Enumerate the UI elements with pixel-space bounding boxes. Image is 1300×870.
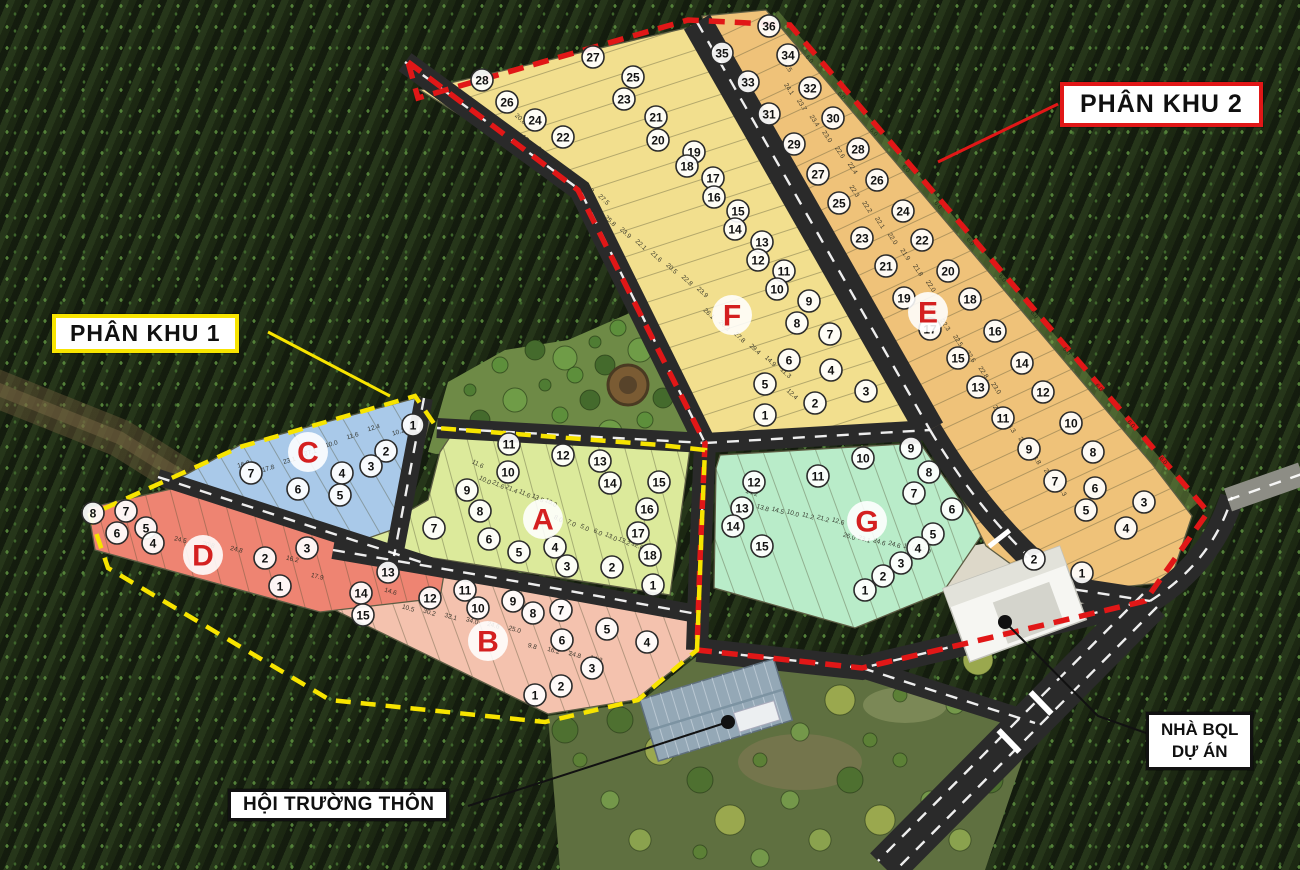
plot-number: 13 — [971, 381, 985, 395]
plot-number: 1 — [532, 689, 539, 703]
tree — [687, 767, 713, 793]
plot-number: 8 — [926, 466, 933, 480]
plot-number: 8 — [530, 607, 537, 621]
plot-number: 16 — [707, 191, 721, 205]
tree — [949, 829, 971, 851]
tree — [589, 336, 601, 348]
plot-number: 15 — [951, 352, 965, 366]
plot-number: 9 — [806, 295, 813, 309]
plot-number: 13 — [755, 236, 769, 250]
site-plan-canvas: 11.610.021.621.411.613.510.08.07.05.06.0… — [0, 0, 1300, 870]
plot-number: 3 — [564, 560, 571, 574]
zone-letter-E: E — [918, 297, 938, 330]
plot-number: 4 — [1123, 522, 1130, 536]
plot-number: 16 — [988, 325, 1002, 339]
plot-number: 32 — [803, 82, 817, 96]
tree — [751, 849, 769, 867]
plot-number: 25 — [626, 71, 640, 85]
plot-number: 23 — [855, 232, 869, 246]
phan-khu-2-label: PHÂN KHU 2 — [1060, 82, 1263, 127]
zone-letter-B: B — [477, 626, 499, 659]
plot-number: 11 — [997, 412, 1010, 426]
plot-number: 2 — [1031, 553, 1038, 567]
plot-number: 30 — [826, 112, 840, 126]
plot-number: 36 — [762, 20, 776, 34]
plot-number: 10 — [856, 452, 870, 466]
plot-number: 2 — [558, 680, 565, 694]
plot-number: 35 — [715, 47, 729, 61]
plot-number: 7 — [827, 328, 834, 342]
plot-number: 12 — [747, 476, 761, 490]
plot-number: 16 — [640, 503, 654, 517]
plot-number: 6 — [295, 483, 302, 497]
plot-number: 4 — [339, 467, 346, 481]
plot-number: 3 — [863, 385, 870, 399]
plot-number: 5 — [337, 489, 344, 503]
tree — [464, 384, 476, 396]
phan-khu-1-leader — [268, 332, 390, 396]
nha-bql-line1: NHÀ BQL — [1161, 719, 1238, 741]
plot-number: 7 — [1052, 475, 1059, 489]
plot-number: 28 — [475, 74, 489, 88]
plot-number: 31 — [762, 108, 776, 122]
plot-number: 2 — [812, 397, 819, 411]
tree — [610, 320, 626, 336]
tree — [573, 753, 587, 767]
plot-number: 11 — [812, 470, 825, 484]
plot-number: 14 — [603, 477, 617, 491]
plot-number: 2 — [383, 445, 390, 459]
plot-number: 2 — [609, 561, 616, 575]
plot-number: 10 — [1064, 417, 1078, 431]
phan-khu-2-leader — [938, 104, 1058, 162]
plot-number: 17 — [631, 527, 645, 541]
plot-number: 3 — [368, 460, 375, 474]
plot-number: 18 — [643, 549, 657, 563]
plot-number: 20 — [651, 134, 665, 148]
tree — [753, 753, 767, 767]
plot-number: 6 — [1092, 482, 1099, 496]
phan-khu-1-label: PHÂN KHU 1 — [52, 314, 239, 353]
plot-number: 4 — [150, 537, 157, 551]
plot-number: 13 — [381, 566, 395, 580]
plot-number: 1 — [862, 584, 869, 598]
plot-number: 5 — [1083, 504, 1090, 518]
zone-letter-G: G — [855, 506, 878, 539]
plot-number: 1 — [1079, 567, 1086, 581]
plot-number: 20 — [941, 265, 955, 279]
plot-number: 15 — [356, 609, 370, 623]
zone-letter-F: F — [723, 300, 741, 333]
plot-number: 4 — [552, 541, 559, 555]
tree — [693, 845, 707, 859]
plot-number: 10 — [770, 283, 784, 297]
zone-letter-D: D — [192, 540, 214, 573]
plot-number: 22 — [556, 131, 570, 145]
plot-number: 4 — [644, 636, 651, 650]
tree — [539, 379, 551, 391]
plot-number: 8 — [90, 507, 97, 521]
plot-number: 21 — [649, 111, 663, 125]
nha-bql-label: NHÀ BQL DỰ ÁN — [1146, 712, 1253, 770]
plot-number: 2 — [880, 570, 887, 584]
plot-number: 3 — [589, 662, 596, 676]
plot-number: 10 — [501, 466, 515, 480]
tree — [791, 723, 809, 741]
plot-number: 7 — [123, 505, 130, 519]
plot-number: 6 — [486, 533, 493, 547]
tree — [567, 367, 583, 383]
plot-number: 18 — [963, 293, 977, 307]
plot-number: 1 — [650, 579, 657, 593]
plot-number: 13 — [735, 502, 749, 516]
plot-number: 12 — [1036, 386, 1050, 400]
tree — [825, 685, 855, 715]
plot-number: 22 — [915, 234, 929, 248]
plot-number: 4 — [828, 364, 835, 378]
plot-number: 5 — [516, 546, 523, 560]
plot-number: 4 — [915, 542, 922, 556]
plot-number: 1 — [277, 580, 284, 594]
tree — [629, 829, 651, 851]
plot-number: 7 — [431, 522, 438, 536]
tree — [863, 733, 877, 747]
plot-number: 2 — [262, 552, 269, 566]
plot-number: 29 — [787, 138, 801, 152]
plot-number: 23 — [617, 93, 631, 107]
tree — [809, 829, 831, 851]
plot-number: 6 — [786, 354, 793, 368]
plot-number: 11 — [503, 438, 516, 452]
tree — [893, 753, 907, 767]
plot-number: 27 — [586, 51, 600, 65]
plot-number: 3 — [1141, 496, 1148, 510]
plot-number: 9 — [908, 442, 915, 456]
tree — [715, 805, 745, 835]
tree — [637, 412, 653, 428]
tree — [525, 340, 545, 360]
plot-number: 3 — [898, 557, 905, 571]
plot-number: 11 — [459, 584, 472, 598]
plot-number: 1 — [762, 409, 769, 423]
plot-number: 14 — [728, 223, 742, 237]
plot-number: 9 — [464, 484, 471, 498]
tree — [503, 388, 527, 412]
tree — [601, 791, 619, 809]
plot-number: 15 — [755, 540, 769, 554]
plot-number: 34 — [781, 49, 795, 63]
plot-number: 8 — [477, 505, 484, 519]
tree — [552, 407, 568, 423]
tree — [552, 717, 578, 743]
nha-bql-line2: DỰ ÁN — [1161, 741, 1238, 763]
plot-number: 5 — [930, 528, 937, 542]
plot-number: 14 — [354, 587, 368, 601]
plot-number: 17 — [706, 172, 720, 186]
plot-number: 3 — [304, 542, 311, 556]
tree — [781, 791, 799, 809]
plot-number: 12 — [423, 592, 437, 606]
plot-number: 15 — [652, 476, 666, 490]
tree — [553, 346, 577, 370]
tree — [607, 707, 633, 733]
plot-number: 21 — [879, 260, 893, 274]
plot-number: 24 — [528, 114, 542, 128]
plot-number: 9 — [1026, 443, 1033, 457]
plot-number: 27 — [811, 168, 825, 182]
plot-number: 7 — [248, 467, 255, 481]
plot-number: 25 — [832, 197, 846, 211]
hoi-truong-thon-label: HỘI TRƯỜNG THÔN — [228, 789, 449, 821]
plot-number: 12 — [751, 254, 765, 268]
plot-number: 5 — [762, 378, 769, 392]
plot-number: 11 — [778, 265, 791, 279]
plot-number: 13 — [593, 455, 607, 469]
tree — [837, 767, 863, 793]
plot-number: 9 — [510, 595, 517, 609]
plot-number: 6 — [114, 527, 121, 541]
plot-number: 18 — [680, 160, 694, 174]
plot-number: 5 — [604, 623, 611, 637]
master-plan-map: 11.610.021.621.411.613.510.08.07.05.06.0… — [0, 0, 1300, 870]
plot-number: 14 — [726, 520, 740, 534]
plot-number: 10 — [471, 602, 485, 616]
plot-number: 26 — [870, 174, 884, 188]
plot-number: 8 — [794, 317, 801, 331]
plot-number: 14 — [1015, 357, 1029, 371]
tree — [580, 390, 600, 410]
plot-number: 26 — [500, 96, 514, 110]
plot-number: 7 — [911, 487, 918, 501]
tree — [492, 357, 508, 373]
tree — [865, 805, 895, 835]
plot-number: 24 — [896, 205, 910, 219]
plot-number: 15 — [731, 205, 745, 219]
plot-number: 33 — [741, 76, 755, 90]
plot-number: 1 — [410, 419, 417, 433]
plot-number: 7 — [558, 604, 565, 618]
zone-letter-A: A — [532, 504, 554, 537]
zone-letter-C: C — [297, 437, 319, 470]
plot-number: 6 — [559, 634, 566, 648]
plot-number: 28 — [851, 143, 865, 157]
plot-number: 12 — [556, 449, 570, 463]
plot-number: 6 — [949, 503, 956, 517]
plot-number: 8 — [1090, 446, 1097, 460]
plot-number: 19 — [897, 292, 911, 306]
